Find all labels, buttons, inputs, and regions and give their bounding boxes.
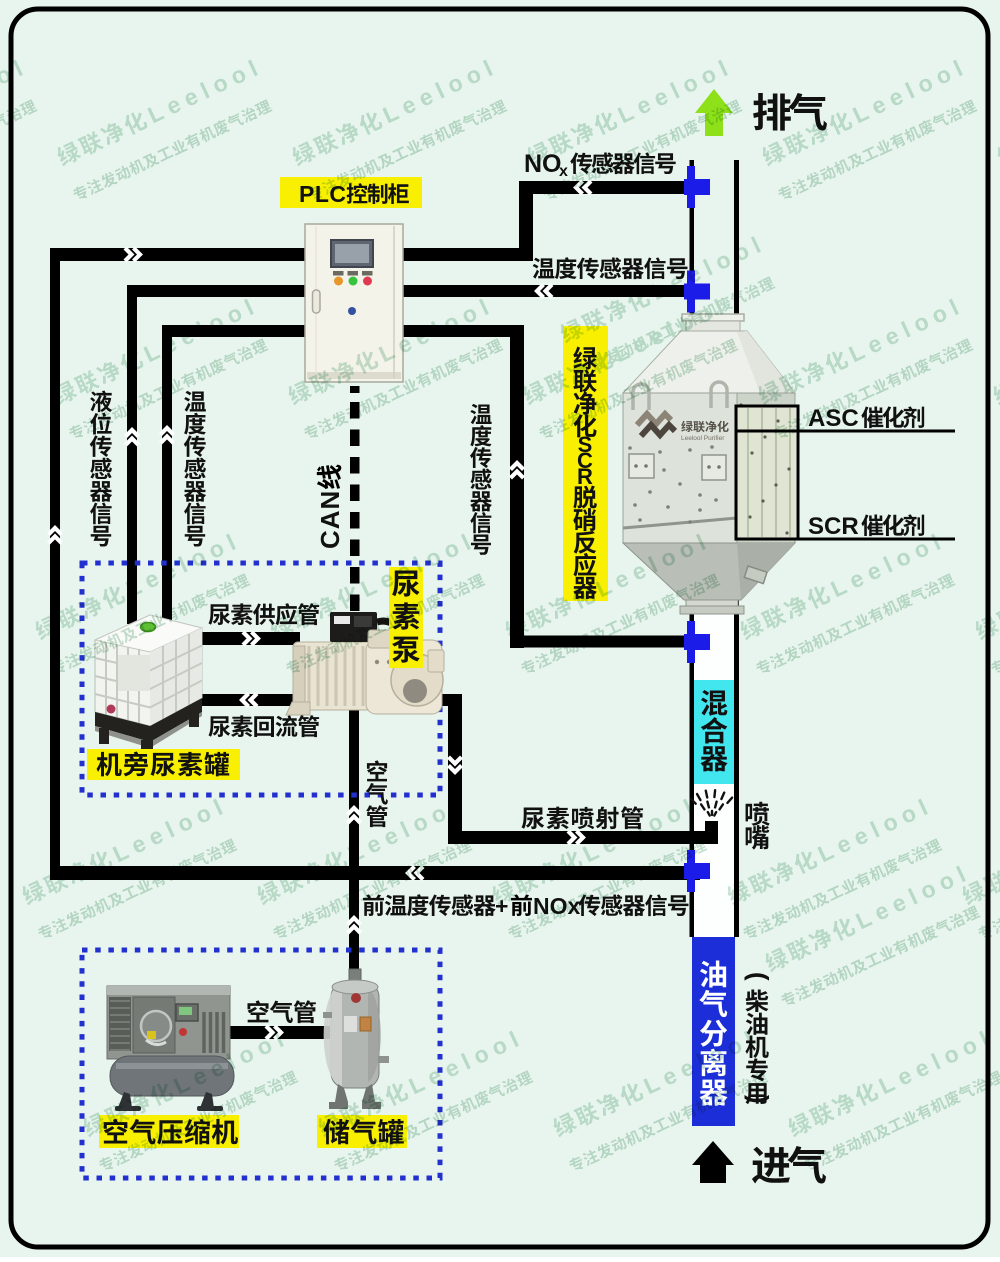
svg-text:(: ( xyxy=(744,972,774,981)
svg-text:PLC: PLC xyxy=(299,181,347,207)
svg-text:): ) xyxy=(744,1095,774,1104)
svg-text:R: R xyxy=(577,464,593,489)
svg-text:x: x xyxy=(559,163,568,180)
svg-text:CAN: CAN xyxy=(315,490,345,549)
svg-text:Leelool Purifier: Leelool Purifier xyxy=(681,435,725,442)
svg-text:SCR: SCR xyxy=(808,513,859,540)
